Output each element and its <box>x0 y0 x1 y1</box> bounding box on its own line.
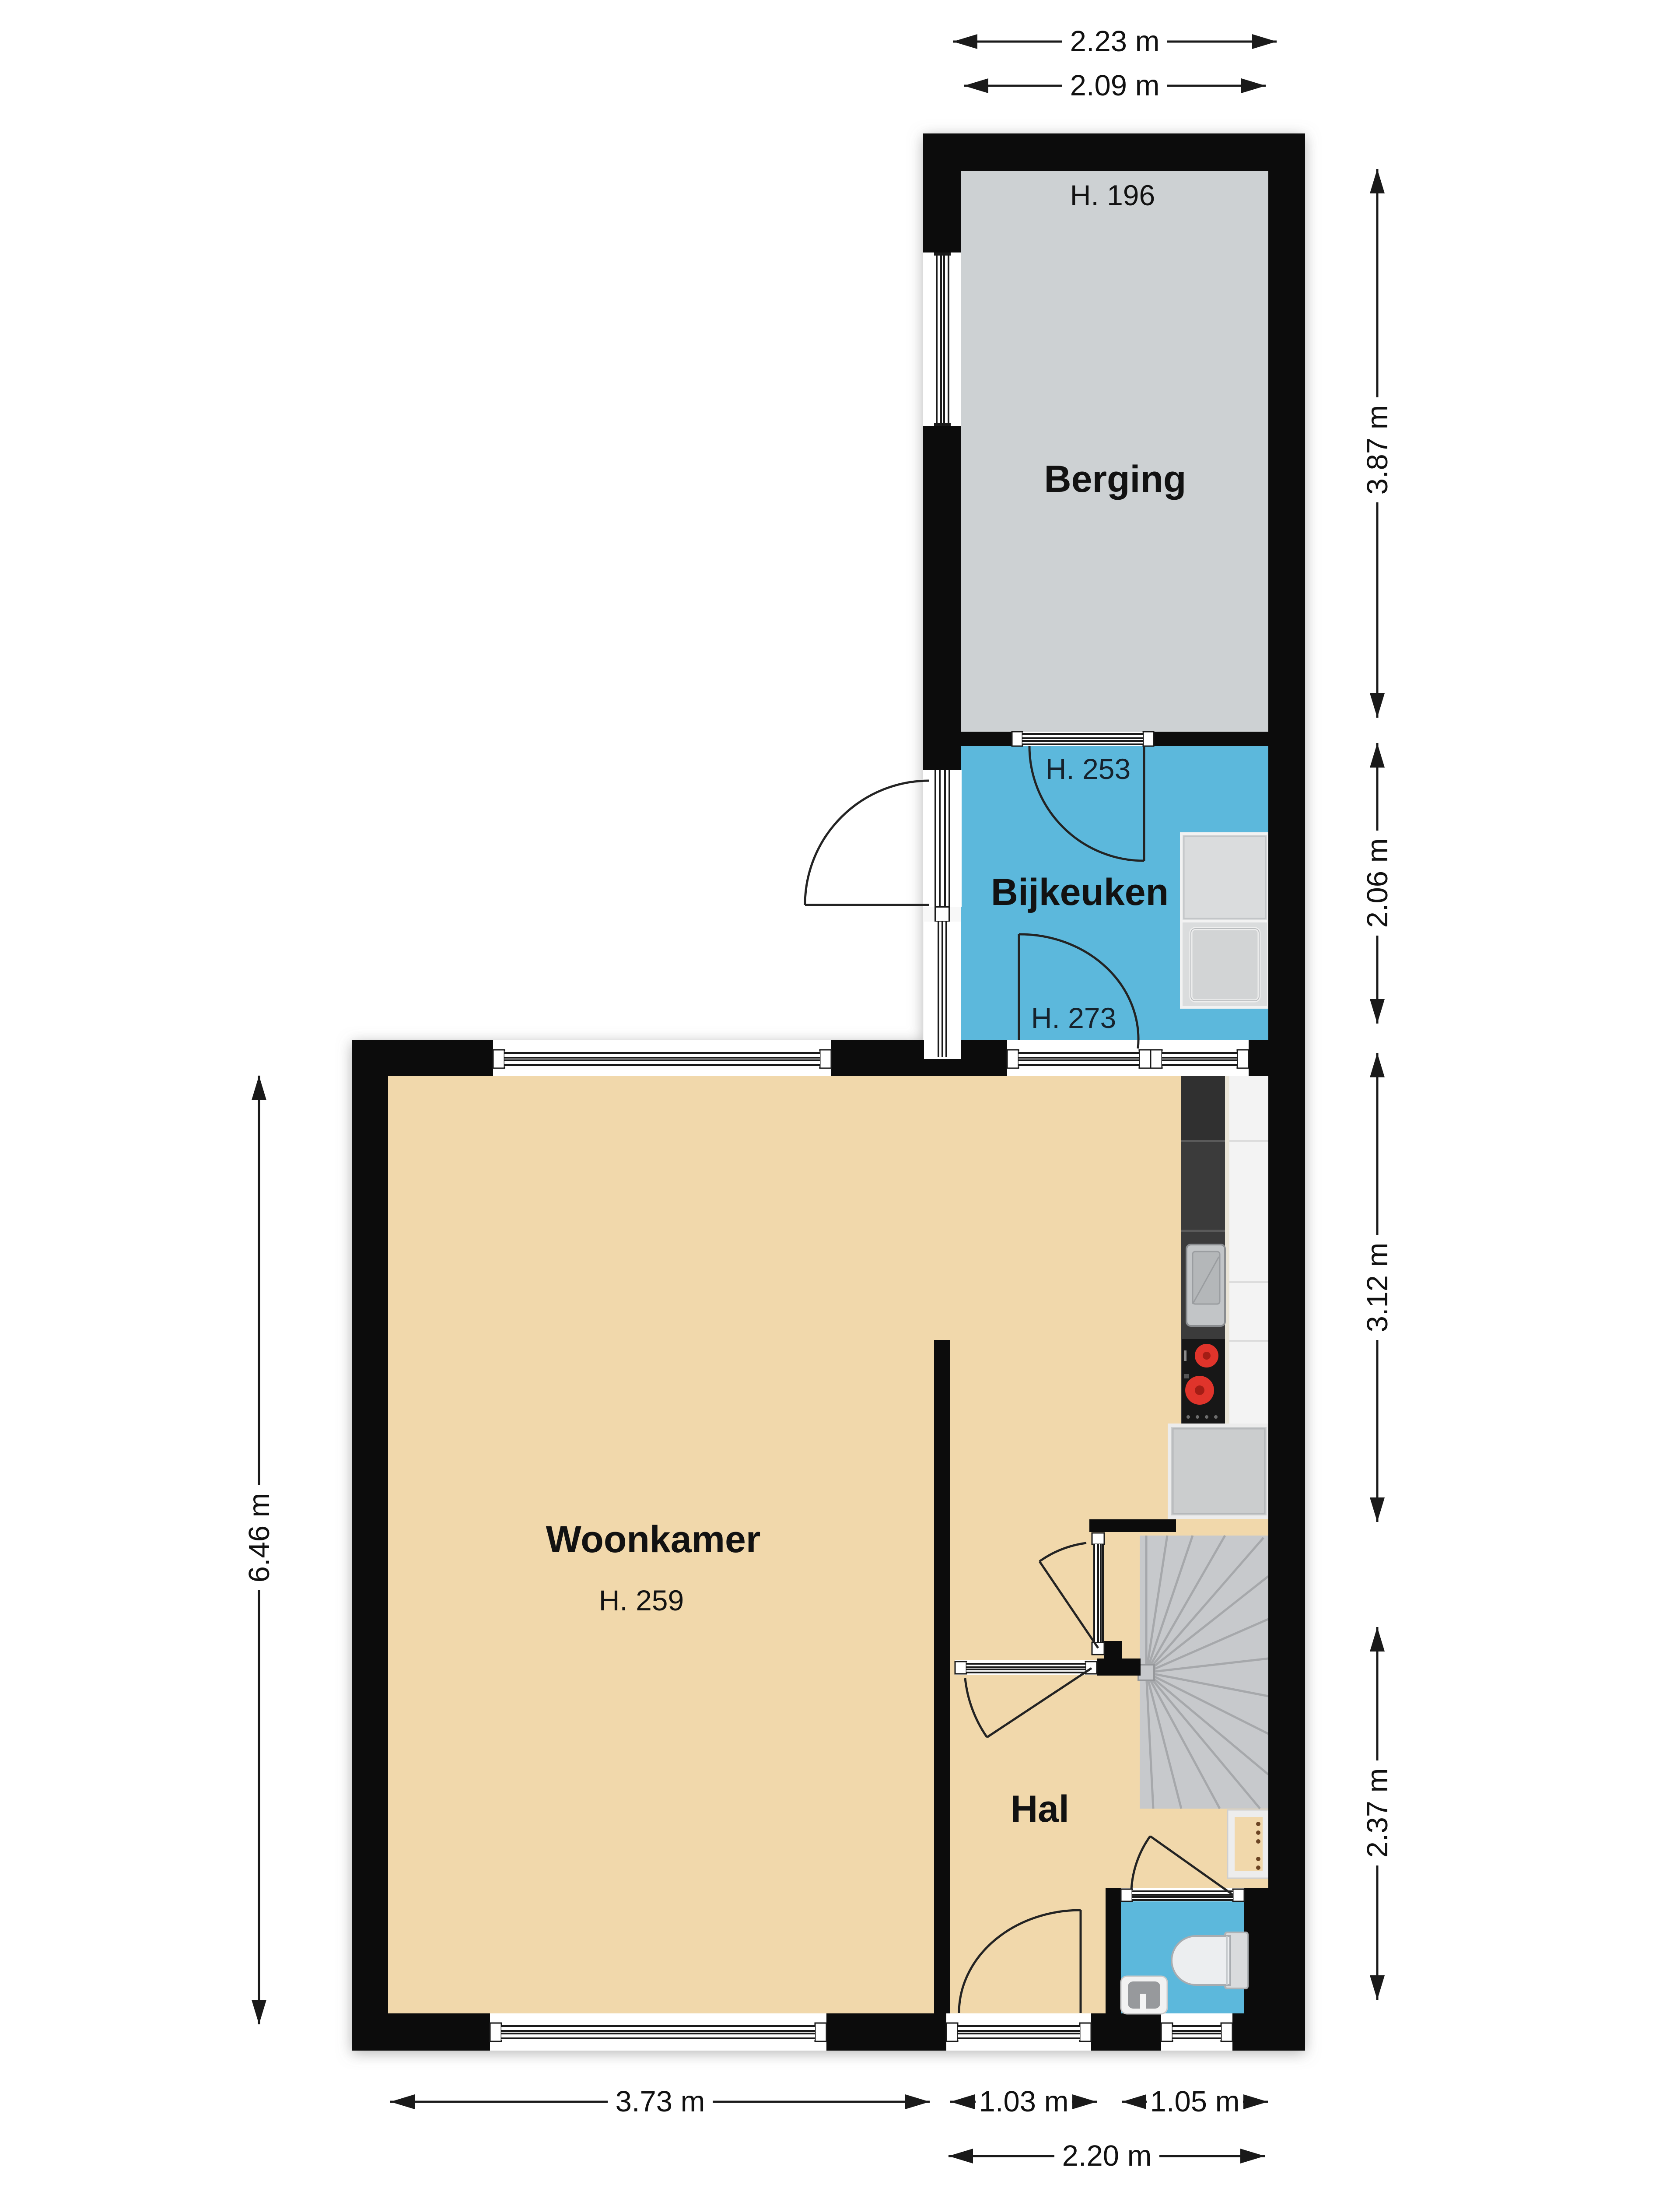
svg-text:2.06 m: 2.06 m <box>1361 838 1394 928</box>
svg-text:2.37 m: 2.37 m <box>1361 1768 1394 1858</box>
svg-text:2.23 m: 2.23 m <box>1070 25 1160 58</box>
svg-text:1.05 m: 1.05 m <box>1150 2085 1240 2118</box>
svg-text:3.87 m: 3.87 m <box>1361 405 1394 495</box>
svg-text:H. 259: H. 259 <box>599 1584 684 1616</box>
svg-text:3.73 m: 3.73 m <box>616 2085 705 2118</box>
svg-text:2.09 m: 2.09 m <box>1070 69 1160 102</box>
svg-text:H. 196: H. 196 <box>1070 179 1155 211</box>
svg-text:Hal: Hal <box>1011 1788 1069 1830</box>
svg-text:3.12 m: 3.12 m <box>1361 1243 1394 1332</box>
svg-text:H. 253: H. 253 <box>1046 753 1130 785</box>
svg-text:1.03 m: 1.03 m <box>979 2085 1069 2118</box>
svg-text:2.20 m: 2.20 m <box>1062 2139 1152 2172</box>
svg-text:6.46 m: 6.46 m <box>243 1493 276 1583</box>
svg-text:Berging: Berging <box>1044 458 1186 500</box>
svg-text:Woonkamer: Woonkamer <box>546 1518 761 1560</box>
svg-text:H. 273: H. 273 <box>1031 1002 1116 1034</box>
svg-text:Bijkeuken: Bijkeuken <box>991 871 1169 913</box>
